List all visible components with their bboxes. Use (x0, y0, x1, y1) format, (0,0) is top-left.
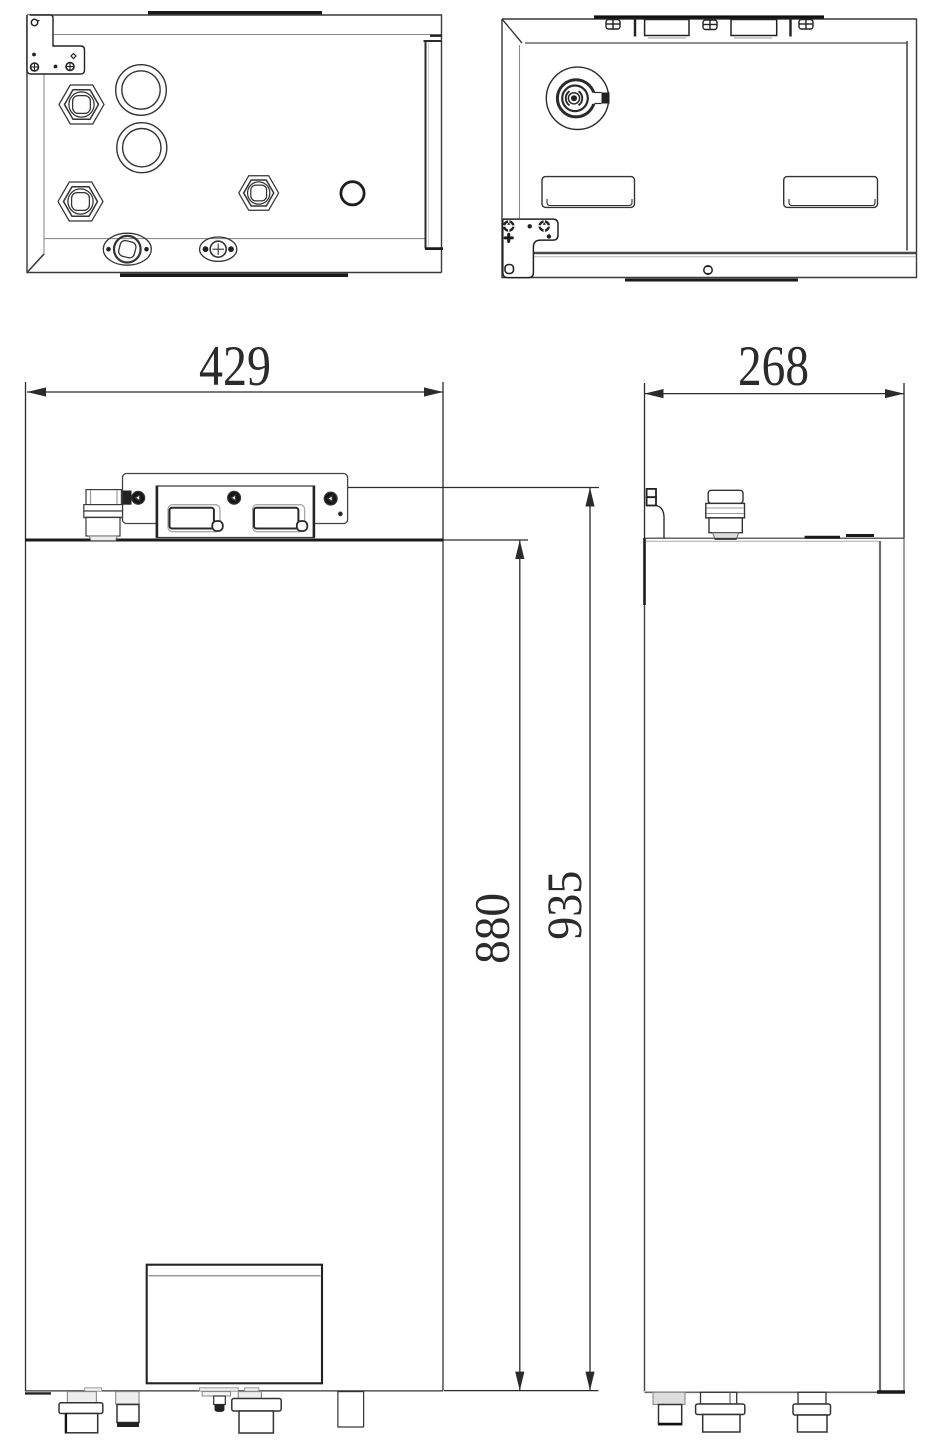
svg-text:935: 935 (536, 871, 592, 940)
svg-text:268: 268 (738, 335, 809, 398)
svg-text:429: 429 (199, 335, 271, 398)
svg-text:880: 880 (464, 893, 520, 964)
